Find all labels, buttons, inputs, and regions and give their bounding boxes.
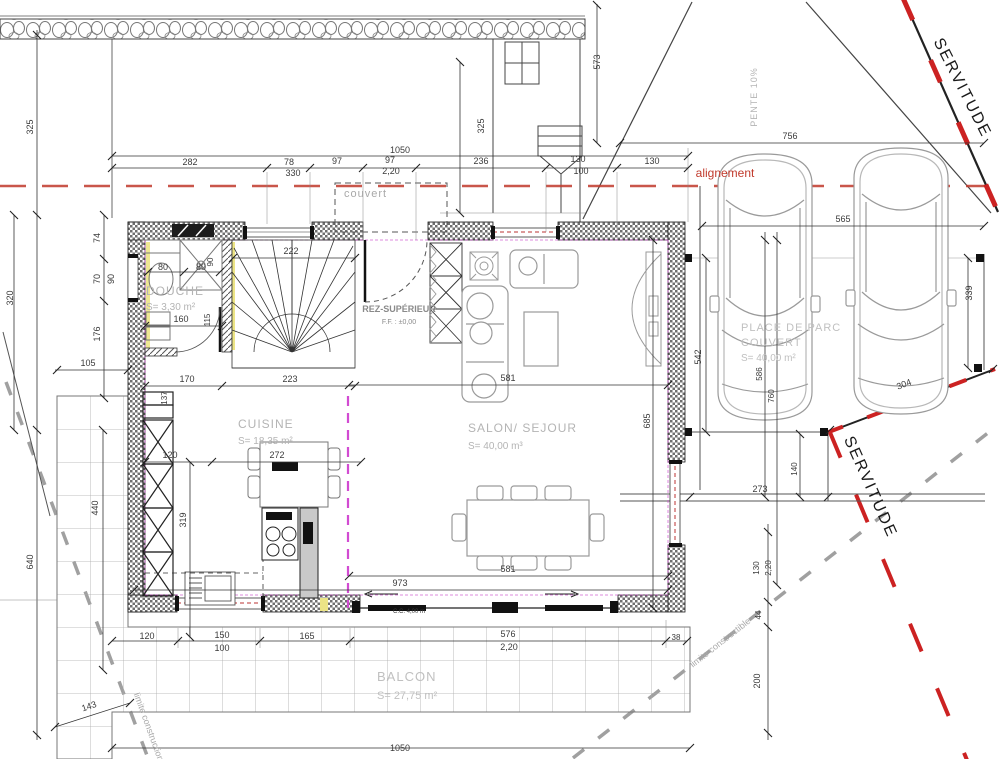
room-balcon: BALCON [377, 669, 436, 684]
dim-160: 160 [173, 314, 188, 324]
dim-115: 115 [203, 313, 212, 326]
kitchen-sink [185, 572, 235, 605]
stone-wall [0, 16, 585, 39]
dim-222: 222 [283, 246, 298, 256]
room-salon-area: S= 40,00 m³ [468, 441, 523, 452]
dim-973: 973 [392, 578, 407, 588]
label-limite-right: limite constructible [688, 616, 752, 669]
dim-97b: 97 [385, 155, 395, 165]
dim-760: 760 [767, 389, 776, 403]
dim-325a: 325 [25, 119, 35, 134]
room-cuisine: CUISINE [238, 417, 294, 431]
dim-2-20b: 2,20 [500, 642, 518, 652]
dim-542: 542 [693, 349, 703, 364]
label-rez: REZ-SUPÉRIEUR [362, 304, 436, 314]
dim-339: 339 [964, 285, 974, 300]
label-cc: C.C. 4,00 m [393, 609, 425, 615]
dim-150: 150 [214, 630, 229, 640]
dim-bottom-1050: 1050 [390, 743, 410, 753]
dim-223: 223 [282, 374, 297, 384]
label-alignement: alignement [696, 166, 755, 180]
floor-plan: 10502827833097972,20236130100130aligneme… [0, 0, 1000, 759]
label-rez-ff: F.F. : ±0,00 [382, 319, 416, 326]
room-parc-area: S= 40,00 m² [741, 353, 796, 364]
dim-282: 282 [182, 157, 197, 167]
dim-325b: 325 [476, 118, 486, 133]
dining-table [452, 486, 604, 570]
dim-130b: 130 [644, 156, 659, 166]
dim-640: 640 [25, 554, 35, 569]
dim-97a: 97 [332, 156, 342, 166]
dim-44: 44 [754, 610, 763, 619]
dim-170: 170 [179, 374, 194, 384]
dim-685: 685 [642, 413, 652, 428]
dim-90a: 90 [106, 274, 116, 284]
dim-2-20a: 2,20 [382, 166, 400, 176]
dim-319: 319 [178, 512, 188, 527]
dim-165: 165 [299, 631, 314, 641]
stove-corner-unit [470, 252, 498, 280]
floor-plan-page: 10502827833097972,20236130100130aligneme… [0, 0, 1000, 759]
windows [128, 224, 682, 611]
dim-top-1050: 1050 [390, 145, 410, 155]
room-salon: SALON/ SEJOUR [468, 421, 577, 435]
kitchen-column [300, 508, 318, 598]
room-cuisine-area: S= 18,35 m² [238, 436, 293, 447]
fireplace [632, 252, 661, 366]
coffee-table [524, 312, 558, 366]
dim-80b: 80 [196, 262, 206, 272]
servitude-line-bottom [829, 430, 967, 759]
room-parc-2: COUVERT [741, 337, 802, 349]
dim-120b: 120 [139, 631, 154, 641]
dim-105: 105 [80, 358, 95, 368]
dim-38a: 38 [672, 633, 681, 642]
dim-78: 78 [284, 157, 294, 167]
label-pente: PENTE 10% [749, 67, 759, 127]
dim-273: 273 [752, 484, 767, 494]
dim-586: 586 [755, 367, 764, 381]
dim-756: 756 [782, 131, 797, 141]
dim-176: 176 [92, 326, 102, 341]
dim-70: 70 [92, 274, 102, 284]
stove [262, 508, 318, 598]
label-servitude-top: SERVITUDE [930, 35, 995, 140]
stairs [232, 240, 355, 368]
dim-573: 573 [592, 54, 602, 69]
dim-100b: 100 [214, 643, 229, 653]
label-couvert: couvert [344, 188, 387, 200]
dim-80a: 80 [158, 262, 168, 272]
dim-140: 140 [790, 462, 799, 476]
dim-320: 320 [5, 290, 15, 305]
dim-2-20c: 2,20 [764, 560, 773, 576]
dim-581b: 581 [500, 564, 515, 574]
room-balcon-area: S= 27,75 m² [377, 690, 438, 702]
dim-200: 200 [752, 673, 762, 688]
car-2 [846, 148, 956, 414]
wardrobe [430, 243, 462, 343]
dim-120k: 120 [162, 450, 177, 460]
room-douche: DOUCHE [146, 284, 204, 298]
dim-330: 330 [285, 168, 300, 178]
dim-581a: 581 [500, 373, 515, 383]
parcel-line-left [3, 332, 50, 516]
dim-565: 565 [835, 214, 850, 224]
dim-576: 576 [500, 629, 515, 639]
sliding-door [352, 591, 618, 613]
dim-130r: 130 [752, 561, 761, 575]
dim-74: 74 [92, 233, 102, 243]
dim-100a: 100 [573, 166, 588, 176]
kitchen-island [248, 442, 340, 507]
dim-137: 137 [160, 391, 169, 405]
kitchen-cabinets [143, 392, 173, 596]
building-walls [128, 222, 685, 612]
dim-440: 440 [90, 500, 100, 515]
dim-236: 236 [473, 156, 488, 166]
dim-272: 272 [269, 450, 284, 460]
room-douche-area: S= 3,30 m² [146, 302, 196, 313]
dim-90b: 90 [206, 257, 215, 266]
room-parc-1: PLACE DE PARC [741, 322, 841, 334]
dim-130a: 130 [570, 154, 585, 164]
label-servitude-bottom: SERVITUDE [840, 434, 900, 541]
